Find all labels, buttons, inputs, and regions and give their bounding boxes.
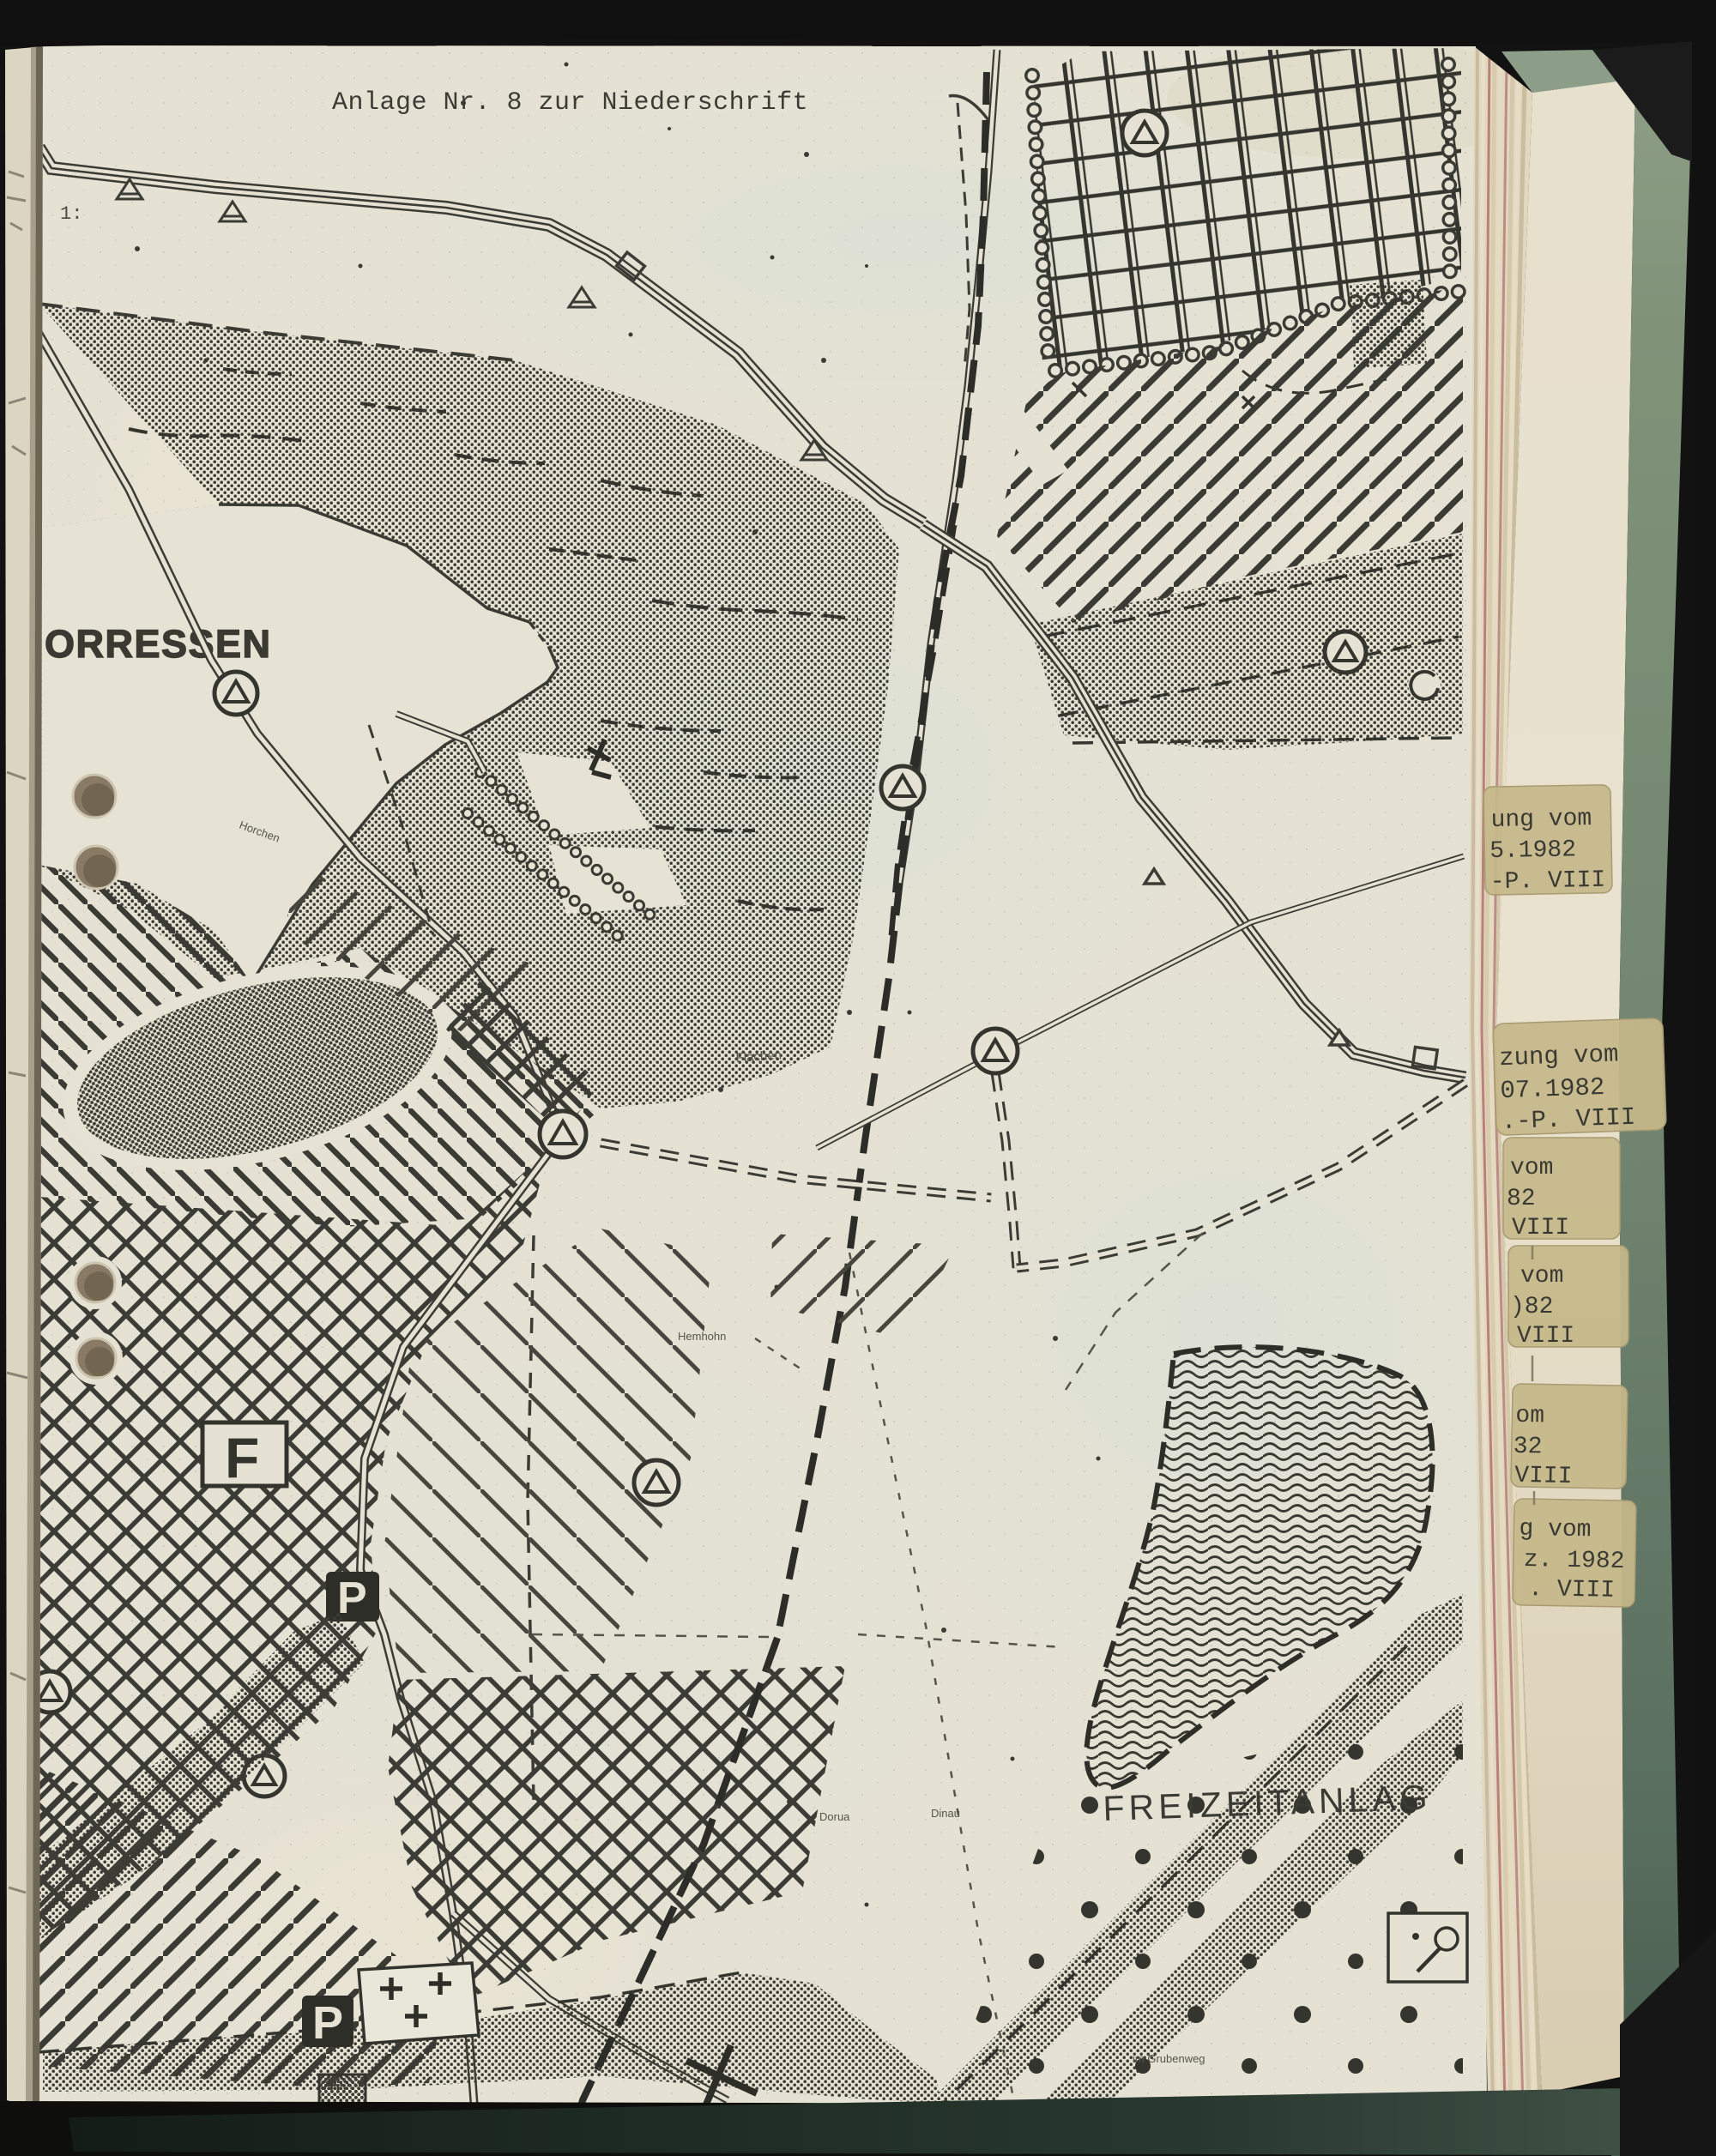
svg-text:1:: 1: (60, 203, 82, 225)
svg-text:g vom: g vom (1519, 1516, 1592, 1543)
svg-text:82: 82 (1507, 1186, 1536, 1212)
svg-text:F: F (225, 1426, 259, 1489)
svg-text:Hemhohn: Hemhohn (678, 1330, 726, 1343)
svg-text:om: om (1515, 1403, 1544, 1430)
svg-text:VIII: VIII (1514, 1463, 1573, 1490)
svg-text:Dinau: Dinau (931, 1807, 960, 1820)
svg-text:vom: vom (1510, 1155, 1553, 1181)
svg-text:07.1982: 07.1982 (1500, 1073, 1605, 1105)
svg-text:P: P (312, 1997, 343, 2049)
svg-text:P: P (337, 1573, 367, 1623)
svg-text:. VIII: . VIII (1528, 1576, 1615, 1604)
svg-text:)82: )82 (1510, 1294, 1553, 1320)
svg-text:Dorua: Dorua (819, 1810, 850, 1823)
svg-text:z. 1982: z. 1982 (1524, 1547, 1625, 1575)
svg-text:VIII: VIII (1517, 1323, 1574, 1350)
svg-text:vom: vom (1520, 1263, 1563, 1289)
svg-text:VIII: VIII (1512, 1215, 1569, 1241)
svg-text:5.1982: 5.1982 (1489, 836, 1576, 865)
svg-text:ung vom: ung vom (1490, 806, 1592, 834)
svg-text:-P. VIII: -P. VIII (1490, 867, 1606, 896)
svg-text:im Grubenweg: im Grubenweg (1133, 2052, 1205, 2065)
svg-text:zung vom: zung vom (1499, 1040, 1619, 1072)
svg-text:ORRESSEN: ORRESSEN (45, 622, 272, 666)
svg-text:32: 32 (1514, 1434, 1543, 1461)
svg-text:Anlage Nr. 8 zur Niederschrift: Anlage Nr. 8 zur Niederschrift (332, 88, 808, 118)
svg-text:.-P. VIII: .-P. VIII (1501, 1103, 1636, 1136)
